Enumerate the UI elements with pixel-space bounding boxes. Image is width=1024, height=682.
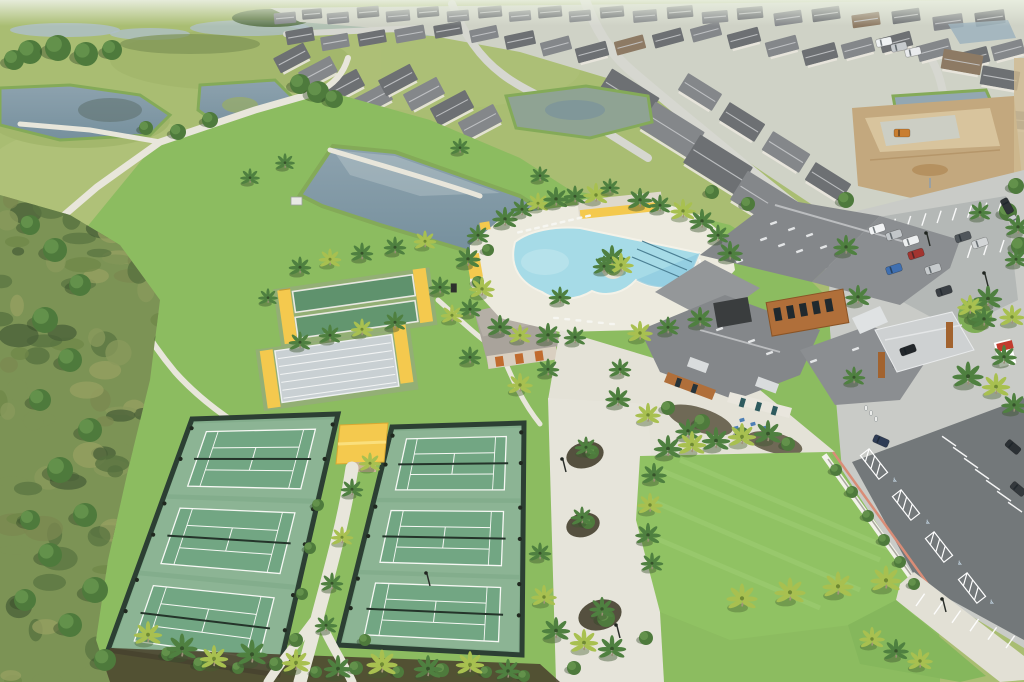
palm-tree (341, 479, 364, 500)
palm-tree (351, 243, 374, 264)
pool-lounger (553, 317, 559, 320)
palm-tree (822, 571, 853, 600)
court-light-pole (331, 422, 335, 426)
palm-tree (530, 166, 550, 184)
court-light-pole (189, 426, 193, 430)
pool-lounger (564, 318, 570, 321)
palm-tree (600, 178, 620, 196)
palm-tree (319, 249, 342, 270)
palm-tree (969, 202, 992, 223)
scrub-clump (5, 236, 29, 247)
accessible-parking-icon: ♿ (925, 519, 930, 526)
accessible-parking-icon: ♿ (892, 477, 897, 484)
pool-lounger (587, 320, 593, 323)
scrub-clump (33, 574, 66, 591)
scrub-clump (107, 465, 123, 477)
palm-tree (331, 527, 354, 548)
palm-tree (455, 247, 481, 271)
palm-tree (627, 188, 653, 212)
court-light-pole (366, 534, 370, 538)
scrub-clump (87, 249, 112, 258)
scrub-clump (14, 482, 42, 496)
palm-tree (883, 639, 909, 663)
palm-tree (543, 187, 569, 211)
court-light-pole (519, 461, 523, 465)
palm-tree (384, 237, 407, 258)
palm-tree (236, 639, 267, 668)
court-light-pole (383, 462, 387, 466)
palm-tree (240, 168, 260, 186)
accessible-parking-icon: ♿ (957, 560, 962, 567)
scrub-clump (70, 382, 104, 399)
palm-tree (542, 617, 570, 643)
car (894, 129, 910, 137)
palm-tree (728, 423, 756, 449)
court-light-pole (356, 577, 360, 581)
palm-tree (469, 277, 495, 301)
palm-tree (459, 347, 482, 368)
court-light-pole (135, 578, 139, 582)
palm-tree (134, 621, 162, 647)
court-light-pole (123, 609, 127, 613)
palm-tree (649, 195, 672, 216)
scrub-clump (88, 526, 111, 546)
aerial-photo-community: ♿♿♿♿ (0, 0, 1024, 682)
palm-tree (200, 645, 228, 671)
palm-tree (289, 257, 312, 278)
palm-tree (450, 138, 470, 156)
palm-tree (845, 285, 871, 309)
palm-tree (605, 387, 631, 411)
palm-tree (564, 186, 587, 207)
pool-lounger (609, 323, 615, 326)
palm-tree (441, 305, 464, 326)
court-light-pole (162, 501, 166, 505)
aerial-photo-canvas: ♿♿♿♿ (0, 0, 1024, 682)
scrub-clump (64, 257, 101, 272)
pond-dock (291, 197, 302, 205)
palm-tree (593, 256, 616, 277)
palm-tree (414, 655, 442, 681)
scrub-clump (7, 379, 28, 401)
palm-tree (654, 435, 682, 461)
scrub-clump (0, 357, 18, 373)
court-light-pole (518, 537, 522, 541)
palm-tree (843, 367, 866, 388)
palm-tree (456, 651, 484, 677)
scrub-clump (12, 247, 24, 256)
scrub-clump (88, 328, 105, 347)
palm-tree (537, 359, 560, 380)
court-light-pole (519, 430, 523, 434)
palm-tree (529, 543, 552, 564)
palm-tree (641, 463, 667, 487)
horizon-haze (0, 0, 1024, 26)
palm-tree (726, 583, 757, 612)
marsh-pond-water (545, 100, 605, 120)
palm-tree (907, 649, 933, 673)
scrub-clump (0, 403, 15, 420)
palm-tree (315, 615, 338, 636)
scrub-clump (0, 545, 32, 554)
palm-tree (289, 332, 312, 353)
palm-tree (324, 655, 352, 681)
palm-tree (282, 649, 310, 675)
palm-tree (258, 288, 278, 306)
palm-tree (598, 635, 626, 661)
palm-tree (351, 319, 374, 340)
court-light-pole (373, 504, 377, 508)
palm-tree (687, 307, 713, 331)
palm-tree (535, 323, 561, 347)
court-light-pole (323, 457, 327, 461)
scrub-clump (11, 347, 29, 360)
court-light-pole (349, 606, 353, 610)
wood-pillar (946, 322, 953, 348)
palm-tree (717, 241, 743, 265)
scrub-clump (0, 670, 21, 681)
palm-tree (982, 373, 1010, 399)
court-light-pole (178, 457, 182, 461)
palm-tree (467, 225, 490, 246)
palm-tree (321, 573, 344, 594)
palm-tree (359, 453, 382, 474)
court-light-pole (151, 533, 155, 537)
palm-tree (275, 153, 295, 171)
palm-tree (531, 585, 557, 609)
palm-tree (702, 427, 730, 453)
palm-tree (833, 235, 859, 259)
palm-tree (991, 345, 1017, 369)
palm-tree (637, 493, 663, 517)
palm-tree (527, 193, 550, 214)
palm-tree (670, 199, 696, 223)
palm-tree (487, 315, 513, 339)
palm-tree (166, 633, 197, 662)
palm-tree (635, 523, 661, 547)
person (875, 416, 877, 421)
court-light-pole (517, 613, 521, 617)
palm-tree (754, 420, 782, 446)
palm-tree (570, 629, 598, 655)
palm-tree (564, 327, 587, 348)
scrub-clump (10, 295, 24, 317)
palm-tree (319, 325, 342, 346)
scrub-clump (23, 412, 43, 431)
palm-tree (774, 577, 805, 606)
palm-tree (657, 317, 680, 338)
palm-tree (384, 312, 407, 333)
palm-tree (635, 403, 661, 427)
court-light-pole (518, 506, 522, 510)
palm-tree (952, 361, 983, 390)
wood-pillar (878, 352, 885, 378)
palm-tree (641, 553, 664, 574)
palm-tree (859, 627, 885, 651)
palm-tree (366, 649, 397, 678)
court-light-pole (283, 628, 287, 632)
pool-lounger (575, 319, 581, 322)
person (865, 405, 867, 410)
court-light-pole (390, 434, 394, 438)
scrub-clump (25, 347, 50, 364)
palm-tree (414, 231, 437, 252)
palm-tree (627, 321, 653, 345)
palm-tree (870, 565, 901, 594)
palm-tree (429, 277, 452, 298)
scrub-clump (105, 340, 131, 366)
person (870, 410, 872, 415)
palm-tree (678, 431, 706, 457)
palm-tree (609, 359, 632, 380)
palm-tree (971, 307, 997, 331)
palm-tree (571, 507, 594, 528)
palm-tree (589, 597, 615, 621)
palm-tree (509, 325, 532, 346)
palm-tree (507, 373, 533, 397)
palm-tree (707, 225, 730, 246)
pool-lounger (598, 321, 604, 324)
palm-tree (575, 437, 598, 458)
accessible-parking-icon: ♿ (989, 599, 994, 606)
court-light-pole (517, 582, 521, 586)
palm-tree (549, 287, 572, 308)
